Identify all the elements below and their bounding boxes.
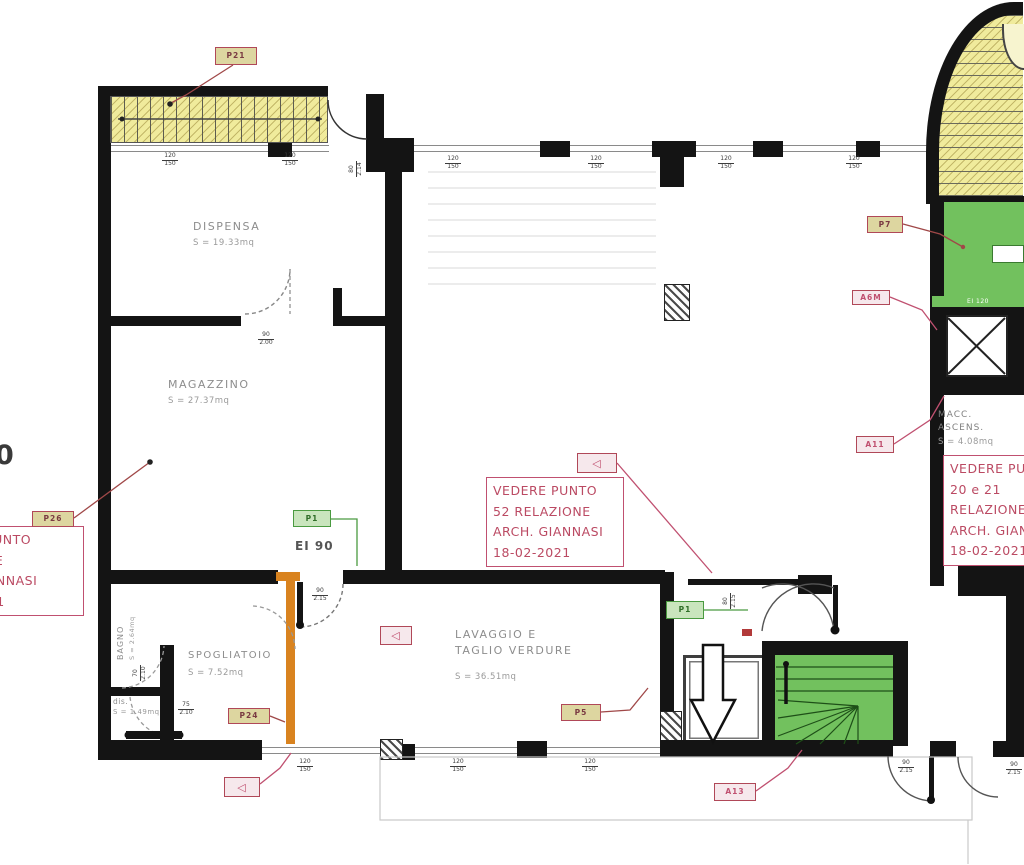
plan-linework [0,0,1024,865]
floor-plan: EI 120 DISPENSA S = 19.33mq MAGAZZINO S … [0,0,1024,865]
